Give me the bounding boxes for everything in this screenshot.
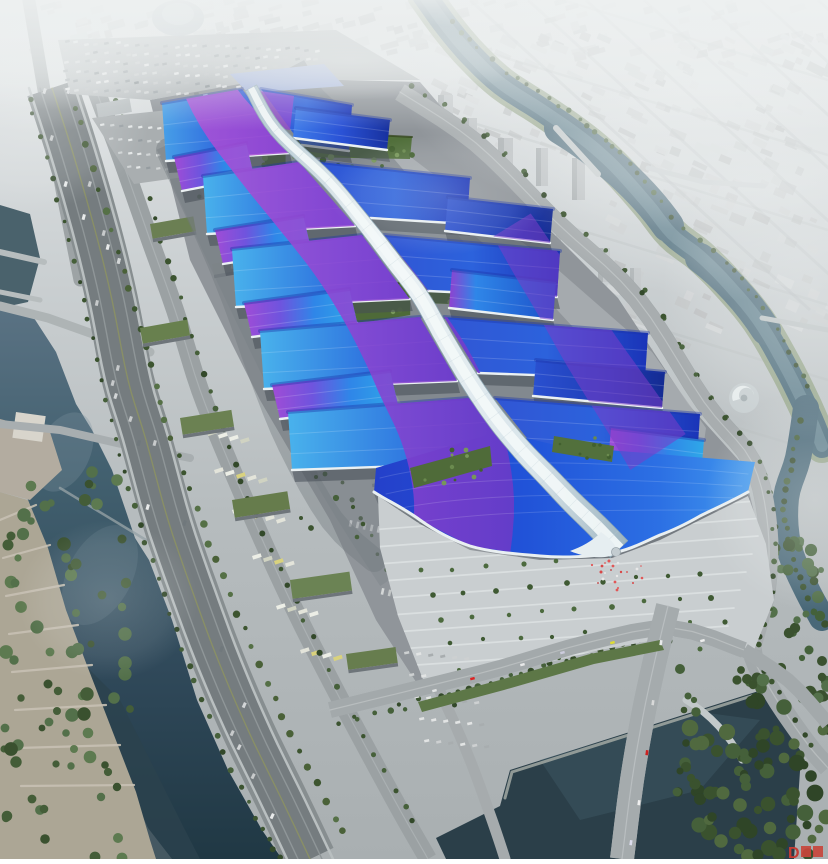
svg-text:D: D <box>788 845 800 859</box>
